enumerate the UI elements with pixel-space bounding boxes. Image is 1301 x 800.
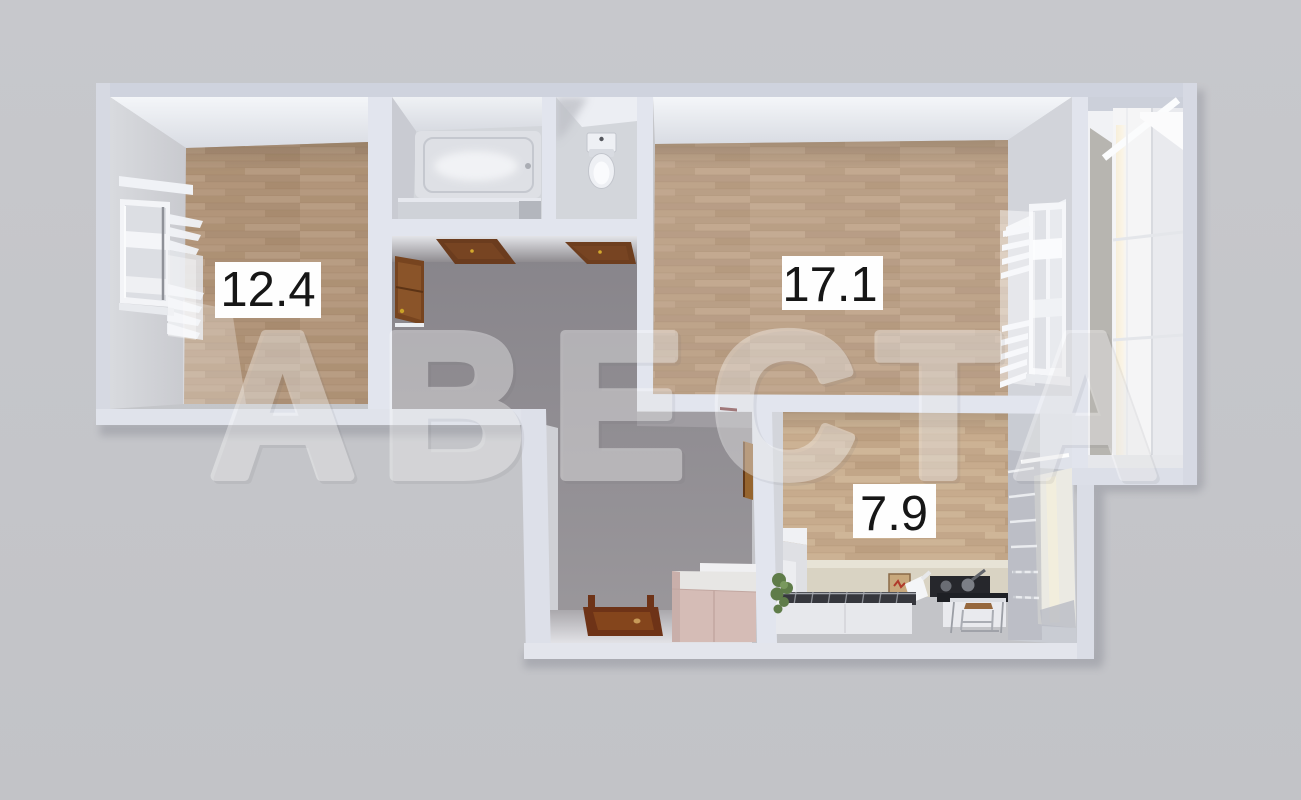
svg-text:17.1: 17.1 bbox=[782, 258, 877, 312]
svg-text:12.4: 12.4 bbox=[220, 263, 315, 317]
svg-text:АВЕСТА: АВЕСТА bbox=[210, 291, 1183, 520]
svg-text:7.9: 7.9 bbox=[860, 487, 928, 541]
